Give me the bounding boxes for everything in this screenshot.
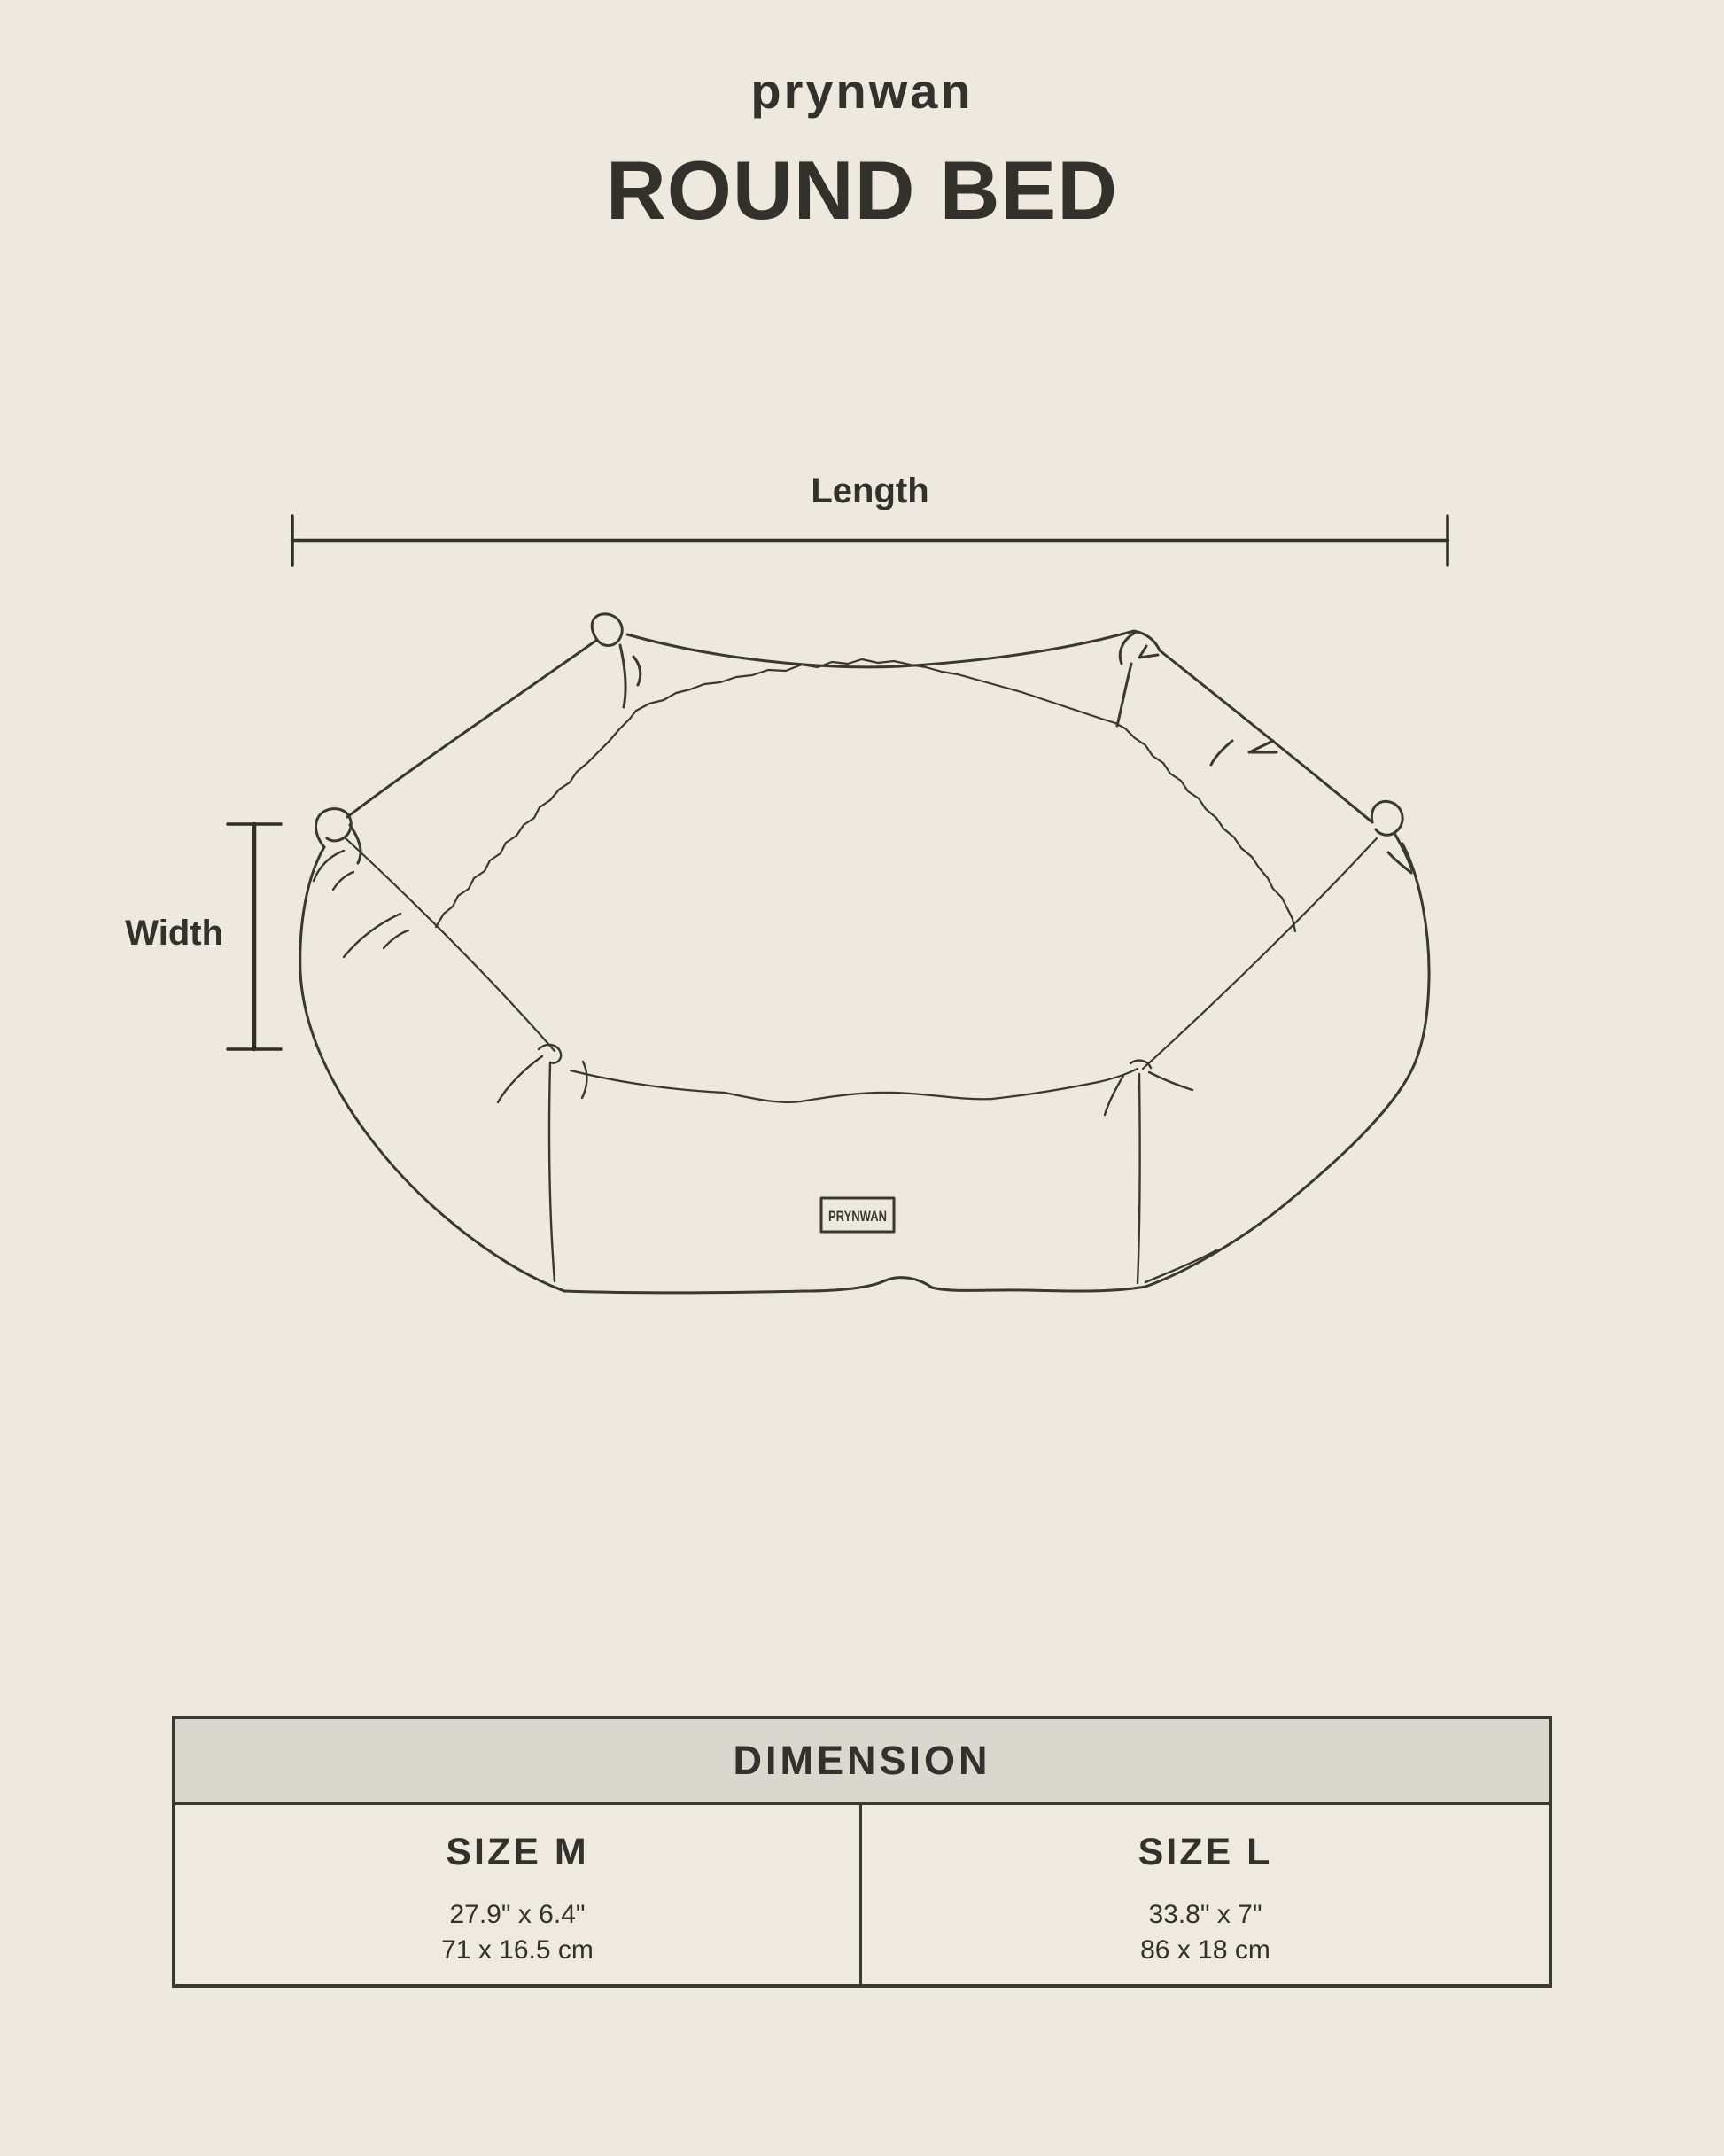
size-m-inches: 27.9" x 6.4" <box>175 1897 859 1933</box>
size-m-column: SIZE M 27.9" x 6.4" 71 x 16.5 cm <box>175 1805 862 1984</box>
size-m-title: SIZE M <box>175 1832 859 1872</box>
length-dimension-line <box>292 516 1448 565</box>
size-l-column: SIZE L 33.8" x 7" 86 x 18 cm <box>862 1805 1549 1984</box>
size-m-cm: 71 x 16.5 cm <box>175 1933 859 1968</box>
dimension-table-header: DIMENSION <box>175 1719 1549 1805</box>
bed-illustration: PRYNWAN <box>300 614 1429 1293</box>
size-l-title: SIZE L <box>862 1832 1549 1872</box>
length-label: Length <box>427 473 1313 509</box>
width-dimension-line <box>228 824 281 1049</box>
bed-brand-tag: PRYNWAN <box>821 1198 894 1232</box>
width-label: Width <box>89 915 223 951</box>
product-dimension-page: prynwan ROUND BED <box>0 0 1724 2156</box>
bed-inner-cushion <box>346 659 1377 1102</box>
dimension-table-body: SIZE M 27.9" x 6.4" 71 x 16.5 cm SIZE L … <box>175 1805 1549 1984</box>
bed-outer-outline <box>300 631 1429 1293</box>
bed-corner-details <box>315 614 1412 873</box>
bed-tag-text: PRYNWAN <box>828 1208 887 1225</box>
size-l-inches: 33.8" x 7" <box>862 1897 1549 1933</box>
size-l-cm: 86 x 18 cm <box>862 1933 1549 1968</box>
bed-fabric-creases <box>314 851 408 957</box>
dimension-table: DIMENSION SIZE M 27.9" x 6.4" 71 x 16.5 … <box>172 1716 1552 1988</box>
